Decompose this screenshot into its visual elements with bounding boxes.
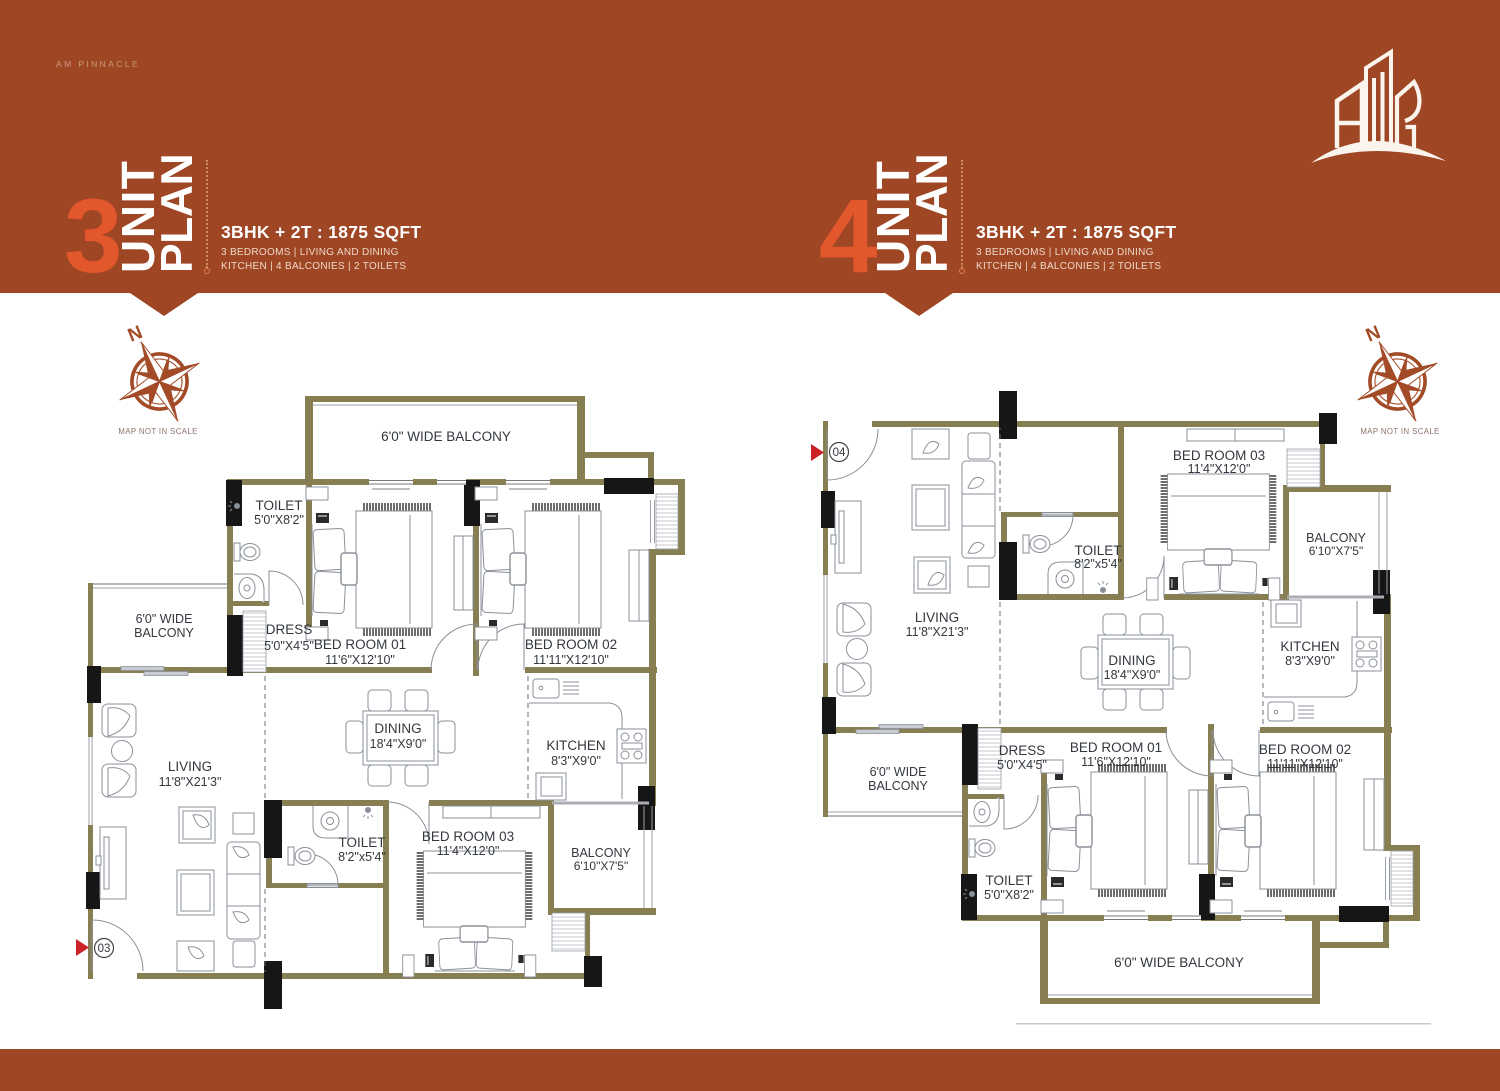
svg-text:5'0"X4'5": 5'0"X4'5" <box>997 758 1047 772</box>
svg-text:BALCONY: BALCONY <box>1306 531 1366 545</box>
svg-text:KITCHEN: KITCHEN <box>546 738 605 753</box>
svg-text:18'4"X9'0": 18'4"X9'0" <box>1104 668 1161 682</box>
svg-text:DRESS: DRESS <box>999 743 1046 758</box>
svg-text:DINING: DINING <box>374 721 421 736</box>
svg-text:BALCONY: BALCONY <box>571 846 631 860</box>
svg-text:BALCONY: BALCONY <box>868 779 928 793</box>
svg-text:6'0" WIDE: 6'0" WIDE <box>870 765 927 779</box>
svg-text:LIVING: LIVING <box>915 610 959 625</box>
svg-text:BED ROOM 02: BED ROOM 02 <box>1259 742 1351 757</box>
svg-text:6'0" WIDE BALCONY: 6'0" WIDE BALCONY <box>381 429 511 444</box>
svg-text:5'0"X4'5": 5'0"X4'5" <box>264 639 314 653</box>
svg-text:BED ROOM 01: BED ROOM 01 <box>1070 740 1162 755</box>
svg-text:TOILET: TOILET <box>255 498 302 513</box>
svg-text:DRESS: DRESS <box>266 622 313 637</box>
svg-text:BED ROOM 03: BED ROOM 03 <box>422 829 514 844</box>
svg-text:8'3"X9'0": 8'3"X9'0" <box>551 754 601 768</box>
svg-text:5'0"X8'2": 5'0"X8'2" <box>984 888 1034 902</box>
svg-text:11'6"X12'10": 11'6"X12'10" <box>325 653 395 667</box>
svg-text:MAP NOT IN SCALE: MAP NOT IN SCALE <box>1360 427 1439 436</box>
svg-text:5'0"X8'2": 5'0"X8'2" <box>254 513 304 527</box>
svg-text:BED ROOM 01: BED ROOM 01 <box>314 637 406 652</box>
svg-text:LIVING: LIVING <box>168 759 212 774</box>
svg-text:11'8"X21'3": 11'8"X21'3" <box>159 775 222 789</box>
svg-text:8'2"x5'4": 8'2"x5'4" <box>1074 557 1122 571</box>
svg-text:03: 03 <box>98 943 111 955</box>
svg-text:6'0" WIDE: 6'0" WIDE <box>136 612 193 626</box>
svg-text:DINING: DINING <box>1108 653 1155 668</box>
svg-text:8'3"X9'0": 8'3"X9'0" <box>1285 654 1335 668</box>
svg-text:6'0" WIDE BALCONY: 6'0" WIDE BALCONY <box>1114 955 1244 970</box>
svg-text:BALCONY: BALCONY <box>134 626 194 640</box>
svg-text:BED ROOM 03: BED ROOM 03 <box>1173 448 1265 463</box>
svg-text:11'11"X12'10": 11'11"X12'10" <box>533 653 609 667</box>
svg-text:TOILET: TOILET <box>985 873 1032 888</box>
svg-text:TOILET: TOILET <box>338 835 385 850</box>
svg-text:04: 04 <box>833 447 846 459</box>
svg-text:8'2"x5'4": 8'2"x5'4" <box>338 850 386 864</box>
svg-text:6'10"X7'5": 6'10"X7'5" <box>574 859 628 873</box>
svg-text:BED ROOM 02: BED ROOM 02 <box>525 637 617 652</box>
svg-text:11'8"X21'3": 11'8"X21'3" <box>906 625 969 639</box>
svg-text:18'4"X9'0": 18'4"X9'0" <box>370 737 427 751</box>
svg-text:MAP NOT IN SCALE: MAP NOT IN SCALE <box>118 427 197 436</box>
svg-text:11'4"X12'0": 11'4"X12'0" <box>1188 462 1251 476</box>
svg-text:6'10"X7'5": 6'10"X7'5" <box>1309 544 1363 558</box>
svg-text:KITCHEN: KITCHEN <box>1280 639 1339 654</box>
svg-text:TOILET: TOILET <box>1074 543 1121 558</box>
svg-text:11'11"X12'10": 11'11"X12'10" <box>1267 757 1343 771</box>
svg-text:11'4"X12'0": 11'4"X12'0" <box>437 844 500 858</box>
svg-text:11'6"X12'10": 11'6"X12'10" <box>1081 755 1151 769</box>
